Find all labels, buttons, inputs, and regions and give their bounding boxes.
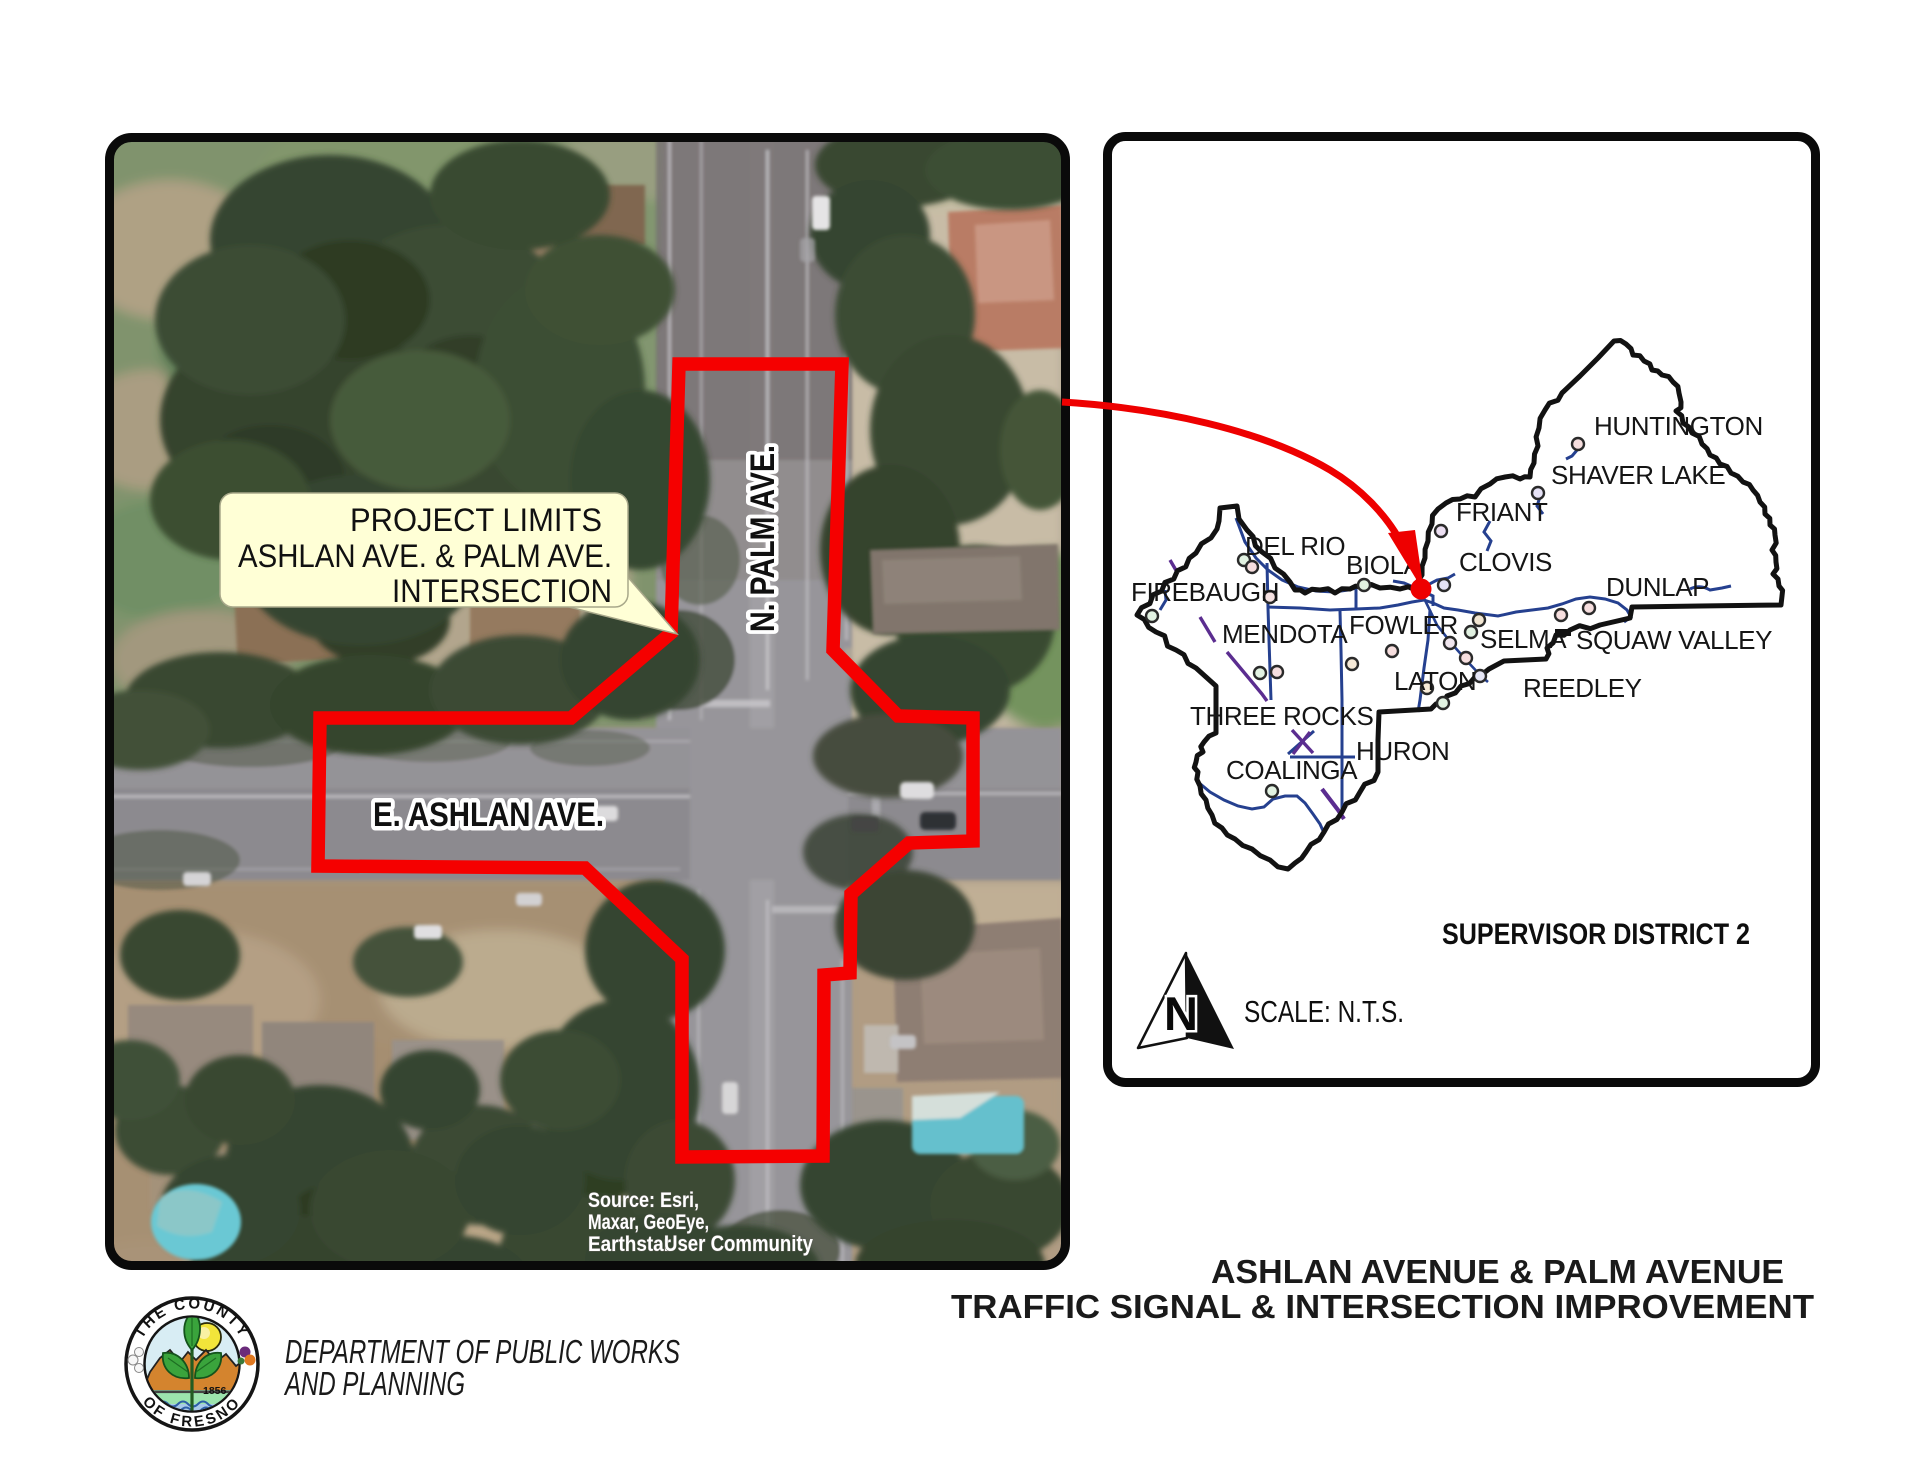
svg-text:FIREBAUGH: FIREBAUGH [1131,577,1279,607]
svg-text:SUPERVISOR DISTRICT 2: SUPERVISOR DISTRICT 2 [1442,918,1750,951]
svg-text:REEDLEY: REEDLEY [1523,673,1642,703]
svg-text:N: N [1164,987,1198,1040]
svg-text:E. ASHLAN AVE.: E. ASHLAN AVE. [373,796,604,834]
svg-text:Source: Esri,: Source: Esri, [588,1189,699,1212]
svg-text:User Community: User Community [664,1231,814,1256]
svg-text:SCALE: N.T.S.: SCALE: N.T.S. [1244,994,1404,1029]
svg-text:INTERSECTION: INTERSECTION [392,573,612,609]
svg-text:DUNLAP: DUNLAP [1606,572,1709,602]
svg-text:LATON: LATON [1394,666,1476,696]
svg-text:SELMA: SELMA [1480,624,1567,654]
svg-text:SQUAW VALLEY: SQUAW VALLEY [1576,625,1772,655]
svg-text:1856: 1856 [203,1385,227,1397]
svg-text:N. PALM AVE.: N. PALM AVE. [744,445,782,632]
svg-text:FOWLER: FOWLER [1349,610,1458,640]
svg-text:COALINGA: COALINGA [1226,755,1358,785]
svg-text:MENDOTA: MENDOTA [1222,619,1348,649]
svg-text:PROJECT LIMITS: PROJECT LIMITS [350,502,602,538]
svg-text:FRIANT: FRIANT [1456,497,1548,527]
svg-text:DEL RIO: DEL RIO [1245,531,1345,561]
svg-text:AND PLANNING: AND PLANNING [284,1365,465,1402]
svg-text:HUNTINGTON: HUNTINGTON [1594,411,1763,441]
svg-text:THREE ROCKS: THREE ROCKS [1190,701,1373,731]
svg-text:HURON: HURON [1356,736,1449,766]
svg-text:SHAVER LAKE: SHAVER LAKE [1551,460,1725,490]
svg-text:TRAFFIC SIGNAL & INTERSECTION: TRAFFIC SIGNAL & INTERSECTION IMPROVEMEN… [951,1288,1814,1325]
svg-text:ASHLAN AVENUE & PALM AVENUE: ASHLAN AVENUE & PALM AVENUE [1211,1253,1784,1290]
svg-text:ASHLAN AVE. & PALM AVE.: ASHLAN AVE. & PALM AVE. [238,538,612,574]
svg-text:CLOVIS: CLOVIS [1459,547,1552,577]
svg-text:Earthstar: Earthstar [588,1233,671,1256]
